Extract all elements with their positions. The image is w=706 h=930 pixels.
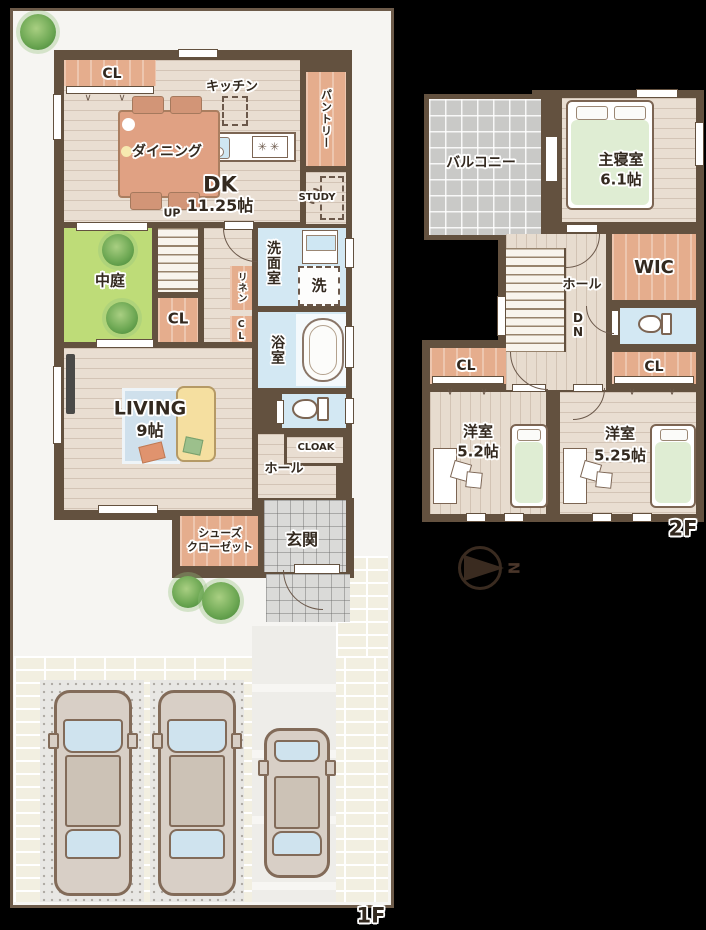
floor2-label: 2F: [669, 519, 698, 540]
closet-chevron: ∨: [668, 387, 675, 398]
car-icon-1: [54, 690, 132, 896]
bed-duvet: [655, 442, 691, 503]
label-cl-left: CL: [456, 359, 475, 373]
label-dining: ダイニング: [132, 145, 202, 159]
window-courtyard-top: [76, 222, 148, 231]
closet-chevron: ∨: [628, 387, 635, 398]
car-mirror: [48, 733, 59, 749]
car-mirror: [258, 760, 269, 776]
label-kitchen: キッチン: [206, 81, 258, 94]
label-study: STUDY: [299, 193, 336, 203]
car-windshield: [272, 831, 321, 857]
label-cloak: CLOAK: [297, 443, 334, 453]
closet-chevron: ∨: [118, 93, 125, 104]
window-west1: [504, 513, 524, 522]
bed-west2: [650, 424, 696, 508]
toilet-tank: [317, 397, 329, 421]
label-living-size: 9帖: [136, 423, 163, 439]
bed-pillow: [660, 429, 688, 441]
label-down-n: N: [573, 326, 583, 338]
window-bath: [345, 326, 354, 368]
window-washroom: [345, 238, 354, 268]
label-shoes-2: クローゼット: [187, 542, 253, 553]
cl-right-bifold-door: [614, 376, 694, 384]
toilet-bowl: [292, 399, 318, 419]
bed-pillow: [614, 106, 646, 120]
car-mirror: [127, 733, 138, 749]
label-up: UP: [164, 208, 181, 219]
window: [53, 94, 62, 140]
balcony-door: [545, 136, 558, 182]
car-mirror: [231, 733, 242, 749]
window: [178, 49, 218, 58]
toilet-1f: [292, 396, 332, 422]
window-west1: [466, 513, 486, 522]
stove-burner-icon: ✳✳: [258, 142, 282, 153]
label-washroom: 洗面室: [266, 241, 280, 286]
closet-chevron: ∨: [84, 93, 91, 104]
car-roof: [65, 755, 121, 827]
compass-north-label: N: [506, 562, 521, 575]
floorplan-image: ✳✳ ✳ ∨ ∨ CL キッチン パントリー ダイニング DK 11.25帖 S…: [0, 0, 706, 930]
closet-chevron: ∨: [480, 387, 487, 398]
cl-top-bifold-door: [66, 86, 154, 94]
bathtub: [302, 318, 344, 382]
label-dk-size: 11.25帖: [187, 198, 254, 214]
label-cl-mid: CL: [236, 319, 246, 343]
window-master-right: [695, 122, 704, 166]
dining-chair: [132, 96, 164, 114]
label-hall-2f: ホール: [562, 279, 601, 292]
window-west2: [632, 513, 652, 522]
label-master: 主寝室: [598, 153, 643, 168]
door-opening-wc: [276, 400, 284, 424]
label-master-size: 6.1帖: [600, 173, 642, 188]
tree-icon-approach: [202, 582, 240, 620]
tree-icon-approach: [172, 576, 204, 608]
toilet-tank: [661, 313, 672, 335]
label-linen: リネン: [236, 272, 246, 304]
label-wic: WIC: [634, 259, 674, 277]
label-cl-right: CL: [644, 360, 663, 374]
label-cl-stairs: CL: [168, 312, 189, 327]
label-hall-1f: ホール: [264, 463, 303, 476]
label-dk: DK: [203, 175, 237, 196]
refrigerator-outline: [222, 96, 248, 126]
label-down-d: D: [573, 312, 583, 324]
dining-chair: [130, 192, 162, 210]
vanity-basin: [306, 235, 336, 251]
tv-unit: [66, 354, 75, 414]
label-shoes-1: シューズ: [198, 528, 241, 539]
car-mirror: [152, 733, 163, 749]
label-bath: 浴室: [270, 335, 284, 365]
toilet-2f: [638, 312, 676, 336]
label-entrance: 玄関: [286, 532, 318, 548]
label-west2: 洋室: [605, 427, 635, 442]
floor1-label: 1F: [357, 906, 386, 927]
car-roof: [274, 776, 321, 829]
toilet-bowl: [638, 315, 662, 333]
label-cl-top: CL: [102, 67, 121, 81]
label-laundry: 洗: [311, 279, 326, 294]
car-roof: [169, 755, 225, 827]
dining-plate: [122, 118, 135, 131]
label-west2-size: 5.25帖: [594, 449, 646, 464]
label-balcony: バルコニー: [446, 156, 516, 170]
door-opening-master: [566, 224, 598, 233]
car-rear-window: [274, 740, 321, 763]
bed-duvet: [515, 442, 543, 503]
window-wc: [345, 398, 354, 424]
label-west1: 洋室: [463, 425, 493, 440]
window-courtyard-bottom: [96, 339, 154, 348]
window-master-top: [636, 89, 678, 98]
window-living-left: [53, 366, 62, 444]
window-living-bottom: [98, 505, 158, 514]
car-windshield: [63, 719, 122, 753]
compass-needle: [464, 555, 504, 581]
bed-west1: [510, 424, 548, 508]
dining-chair: [170, 96, 202, 114]
bed-pillow: [517, 429, 541, 441]
car-mirror: [325, 760, 336, 776]
label-pantry: パントリー: [321, 89, 332, 149]
cl-left-bifold-door: [432, 376, 504, 384]
tree-icon-courtyard: [102, 234, 134, 266]
desk-west1-chair: [465, 471, 483, 489]
stairs-1f: [158, 228, 200, 292]
sofa-cushion-green: [183, 436, 204, 455]
tree-icon-courtyard: [106, 302, 138, 334]
window-stairwell: [497, 296, 506, 336]
car-rear-window: [65, 829, 121, 859]
car-icon-2: [158, 690, 236, 896]
bed-pillow: [576, 106, 608, 120]
label-courtyard: 中庭: [95, 274, 125, 289]
car-rear-window: [169, 829, 225, 859]
closet-chevron: ∨: [446, 387, 453, 398]
window-west2: [592, 513, 612, 522]
dining-plate: [121, 146, 132, 157]
stairs-2f: [506, 248, 566, 352]
label-west1-size: 5.2帖: [457, 445, 499, 460]
desk-west2-chair: [595, 471, 613, 489]
car-icon-3: [264, 728, 330, 878]
car-windshield: [167, 719, 226, 753]
tree-icon: [20, 14, 56, 50]
label-living: LIVING: [114, 400, 186, 419]
